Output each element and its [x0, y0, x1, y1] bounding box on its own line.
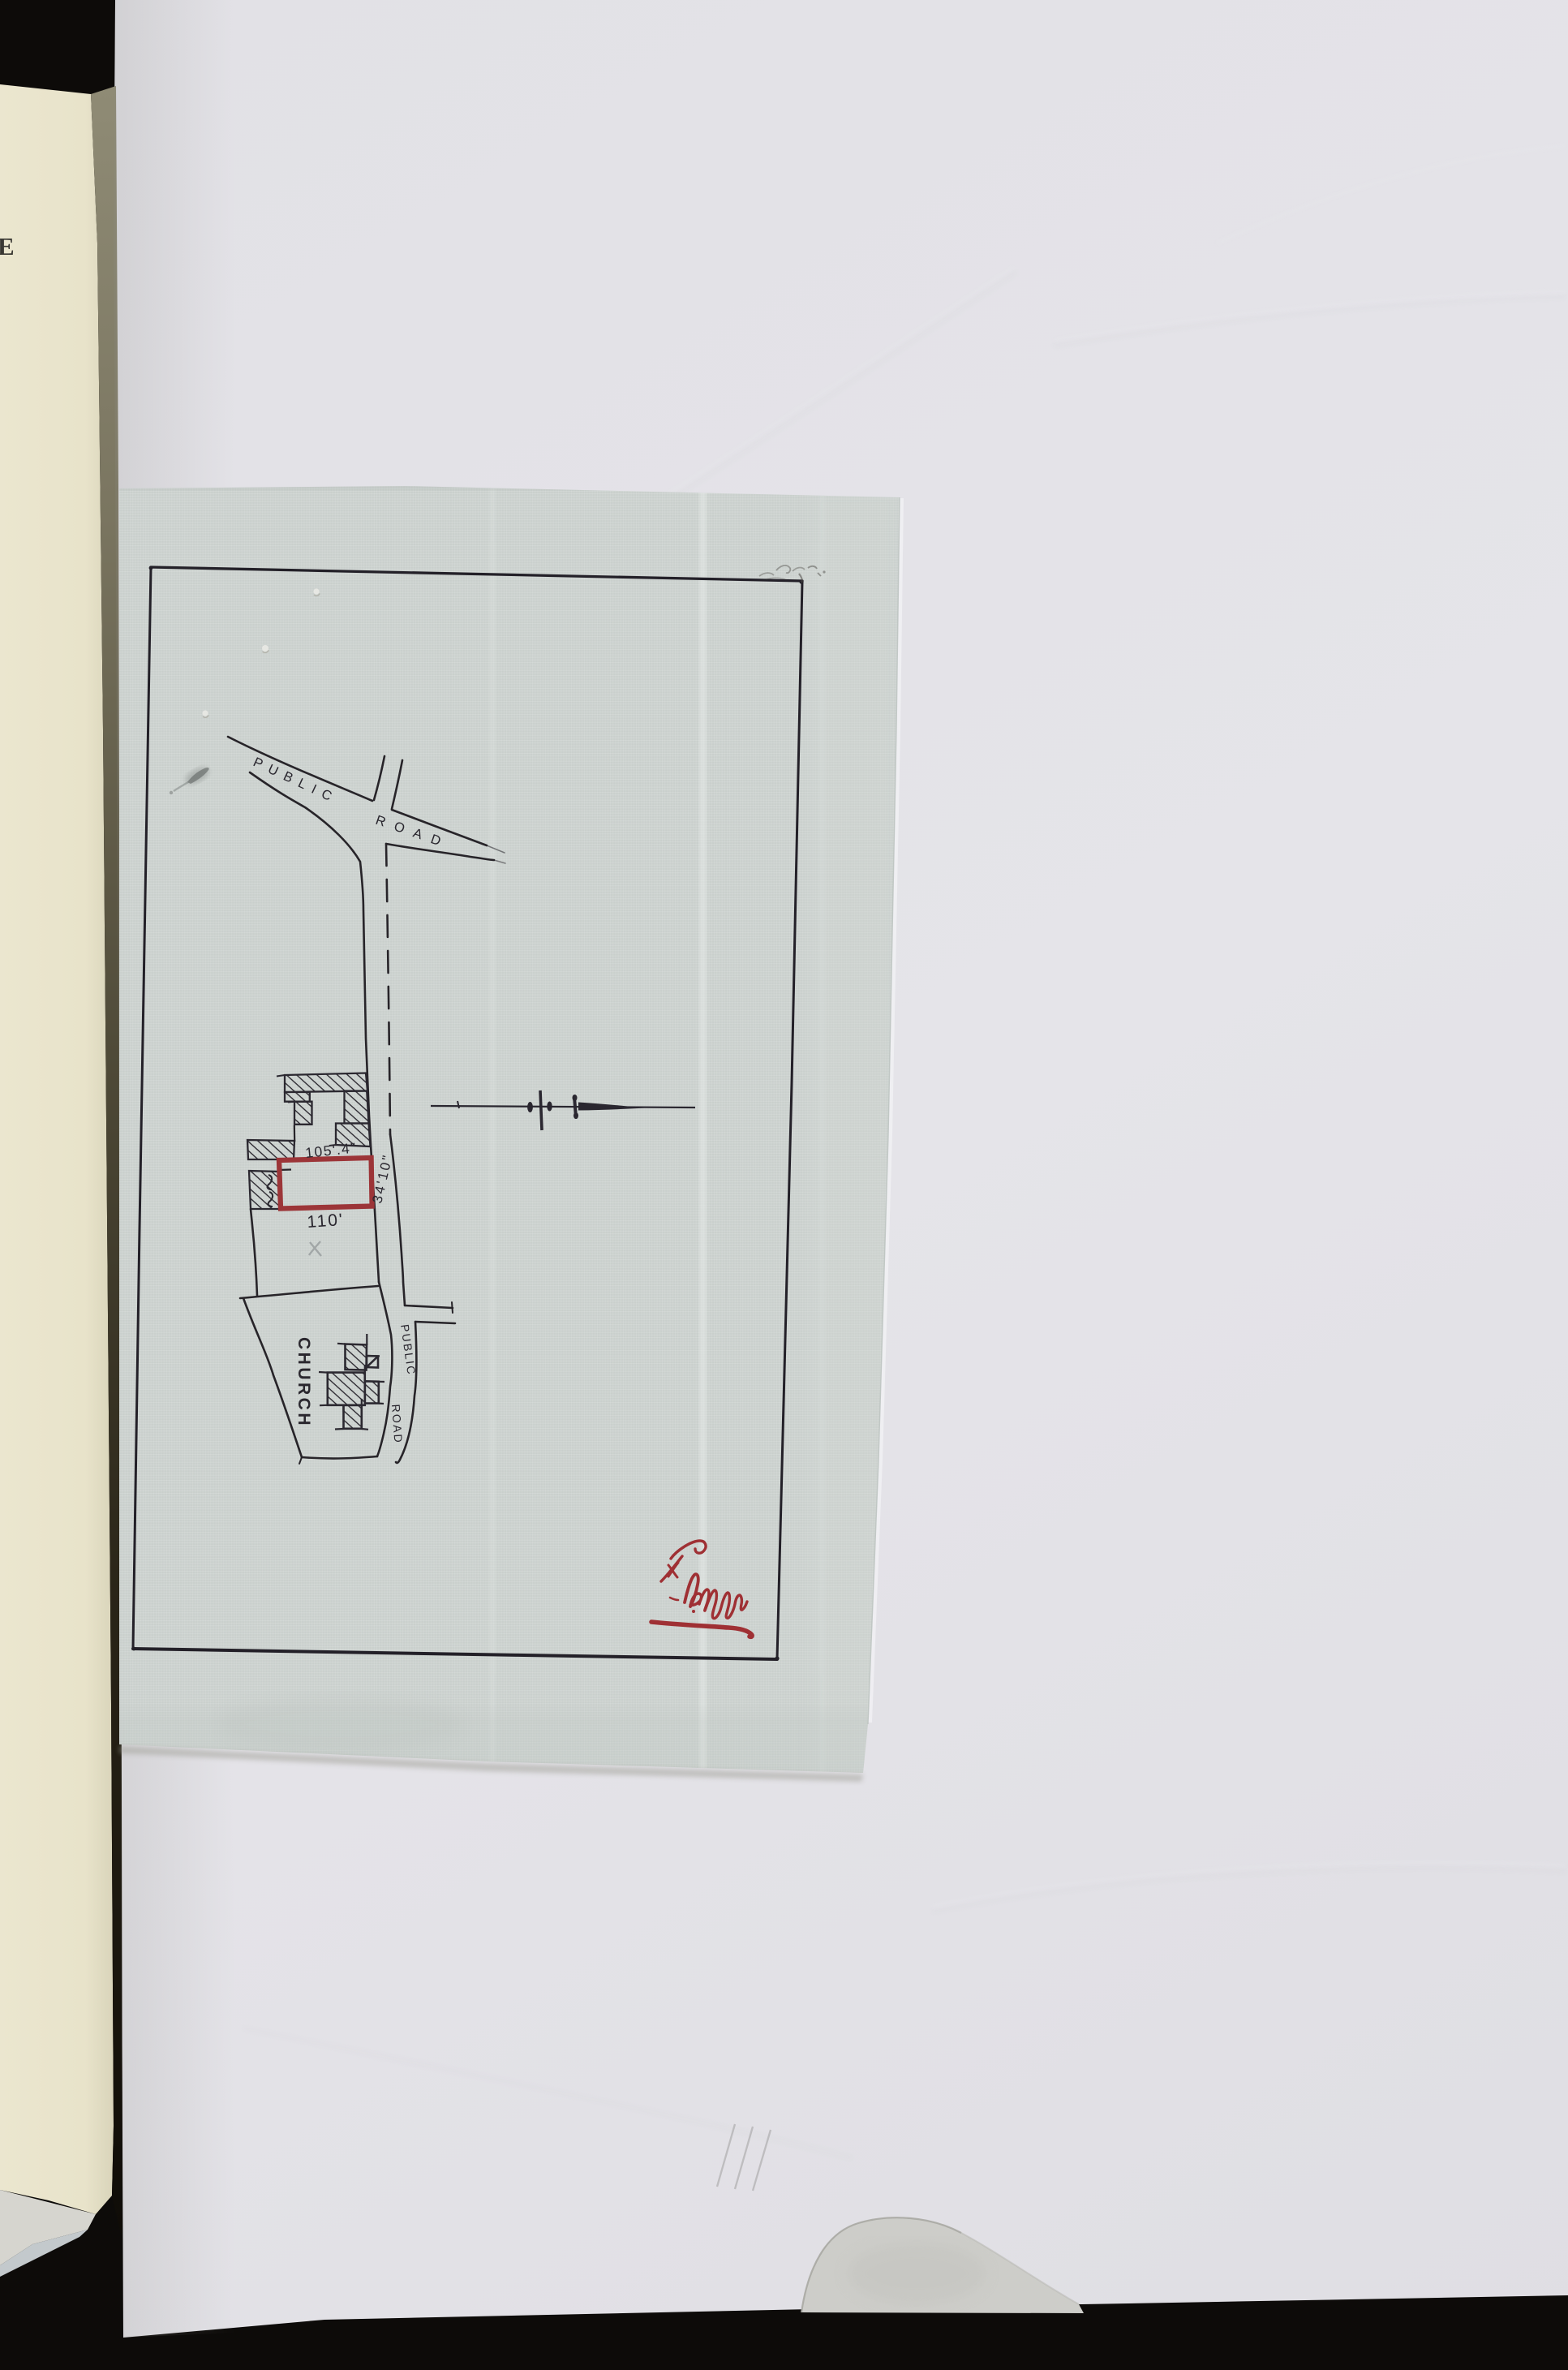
svg-text:110': 110' — [307, 1211, 345, 1232]
svg-text:ROAD: ROAD — [389, 1404, 405, 1444]
svg-text:E: E — [0, 232, 15, 260]
svg-text:CHURCH: CHURCH — [294, 1337, 313, 1428]
